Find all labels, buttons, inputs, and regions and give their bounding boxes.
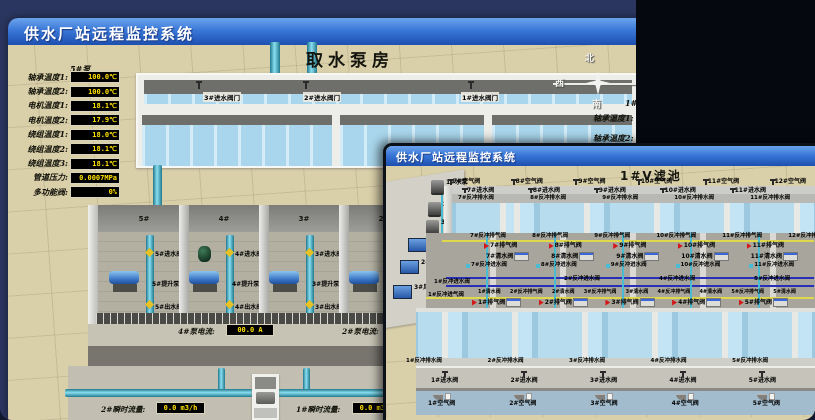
alarm-valve-icon[interactable]: [613, 243, 618, 249]
left-edge-valve-label: 1#反冲进气阀: [428, 293, 464, 299]
valve-label: 2#排气阀: [545, 300, 572, 306]
exhaust-valve[interactable]: 10#排气阀: [678, 243, 715, 249]
inlet-valve[interactable]: 2#进水阀: [510, 371, 537, 384]
bottom-pool-row: [416, 312, 815, 358]
alarm-valve-icon[interactable]: [549, 243, 554, 249]
bottom-inlet-valve-row: 1#进水阀 2#进水阀 3#进水阀 4#进水阀: [431, 368, 776, 386]
flow-meter-1-label: 1#瞬时流量:: [296, 404, 340, 415]
panel-row: 绕组温度3: 18.1℃: [26, 156, 120, 170]
shed-panel: [255, 377, 276, 389]
gate-valve-label: 2#进水阀门: [303, 92, 341, 102]
backwash-air-valve-label: 10#反冲排气阀: [656, 234, 696, 240]
air-valve[interactable]: 7#空气阀: [450, 179, 480, 185]
valve-label: 2#空气阀: [509, 401, 536, 407]
valve-label: 2#进水阀: [510, 378, 537, 384]
water-pump-icon[interactable]: [428, 202, 441, 215]
valve-label: 7#进水阀: [467, 188, 494, 194]
valve-label: 8#空气阀: [516, 179, 543, 185]
valve-label: 5#排气阀: [745, 300, 772, 306]
air-valve[interactable]: 2#空气阀: [509, 393, 536, 407]
valve-label: 1#排气阀: [478, 300, 505, 306]
panel-value: 0%: [70, 186, 120, 198]
air-valve[interactable]: 9#空气阀: [575, 179, 605, 185]
multifunction-valve-tank[interactable]: [198, 246, 211, 262]
air-riser-icon: [769, 393, 775, 400]
gallery-line-label-row: 1#清水阀 2#反冲排气阀 2#清水阀 3#反冲排气阀 3#清水阀 4#反冲排气…: [478, 289, 796, 296]
clean-water-valve[interactable]: 8#清水阀: [551, 252, 594, 261]
pump-base: [113, 284, 137, 292]
panel-label: 电机温度1:: [26, 100, 70, 111]
panel-value: 0.0007MPa: [70, 172, 120, 184]
bottom-drain-valve-row: 1#反冲排水阀 2#反冲排水阀 3#反冲排水阀 4#反冲排水阀 5#反冲排水阀: [406, 358, 768, 365]
drain-valve-label: 10#反冲排水阀: [674, 196, 714, 202]
pump-data-panel: 轴承温度1: 100.0℃ 轴承温度2: 100.0℃ 电机温度1: 18.1℃…: [26, 70, 120, 200]
inlet-valve[interactable]: 8#进水阀: [530, 188, 560, 194]
alarm-valve-icon[interactable]: [472, 300, 477, 306]
inlet-gate-valve-row: 3#进水阀门 2#进水阀门 1#进水阀门: [136, 92, 636, 102]
back-window-titlebar[interactable]: 供水厂站远程监控系统: [8, 18, 653, 45]
panel-label: 管道压力:: [26, 172, 70, 183]
valve-icon[interactable]: [530, 188, 532, 193]
panel-row: 电机温度1: 18.1℃: [26, 99, 120, 113]
exhaust-valve[interactable]: 2#排气阀: [539, 298, 588, 307]
clean-water-valve-icon[interactable]: [640, 298, 655, 307]
blower-icon[interactable]: [400, 260, 419, 274]
valve-label: 10#排气阀: [684, 243, 715, 249]
top-inlet-valve-row: 7#进水阀 8#进水阀 9#进水阀 10#进水阀: [464, 187, 766, 194]
valve-label: 3#空气阀: [590, 401, 617, 407]
backwash-air-valve-label: 8#反冲排气阀: [532, 234, 568, 240]
backwash-air-valve-label: 7#反冲排气阀: [470, 234, 506, 240]
valve-label: 5#进水阀: [749, 378, 776, 384]
panel-row: 管道压力: 0.0007MPa: [26, 171, 120, 185]
gate-valve-icon[interactable]: [198, 81, 200, 89]
lift-pump-label: 5#提升泵: [152, 279, 179, 288]
valve-label: 5#反冲排气阀: [731, 290, 764, 295]
air-valve[interactable]: 10#空气阀: [638, 179, 672, 185]
backwash-water-valve[interactable]: 7#反冲进水阀: [466, 263, 507, 269]
panel-label: 多功能阀:: [26, 187, 70, 198]
valve-icon[interactable]: [638, 179, 640, 185]
drain-valve-label: 1#反冲排水阀: [406, 359, 442, 365]
drain-valve-label: 4#反冲排水阀: [651, 359, 687, 365]
valve-label: 4#空气阀: [672, 401, 699, 407]
panel-label: 轴承温度2:: [26, 86, 70, 97]
panel-value: 18.1℃: [70, 100, 120, 112]
valve-icon[interactable]: [772, 179, 774, 185]
exhaust-valve[interactable]: 8#排气阀: [549, 243, 582, 249]
clean-water-valve[interactable]: 7#清水阀: [486, 252, 529, 261]
alarm-valve-icon[interactable]: [672, 300, 677, 306]
inlet-valve[interactable]: 1#进水阀: [431, 371, 458, 384]
valve-label: 9#排气阀: [619, 243, 646, 249]
valve-label: 4#清水阀: [699, 290, 722, 295]
bottom-air-valve-row: 1#空气阀 2#空气阀 3#空气阀: [428, 390, 780, 410]
backwash-air-valve-label: 9#反冲排气阀: [594, 234, 630, 240]
pump-current-2-label: 2#泵电流:: [342, 326, 379, 337]
clean-water-valve-icon[interactable]: [644, 252, 659, 261]
valve-label: 11#进水阀: [735, 188, 766, 194]
desktop: 供水厂站远程监控系统 取水泵房 5#泵 轴承温度1: 100.0℃ 轴承温度2:…: [0, 0, 815, 420]
valve-icon[interactable]: [444, 371, 446, 377]
inlet-valve[interactable]: 4#进水阀: [669, 371, 696, 384]
valve-label: 11#反冲进水阀: [754, 263, 794, 269]
valve-label: 11#空气阀: [708, 179, 739, 185]
clean-water-valve-icon[interactable]: [706, 298, 721, 307]
panel-value: 18.1℃: [70, 143, 120, 155]
valve-label: 3#进水阀: [590, 378, 617, 384]
valve-label: 1#空气阀: [428, 401, 455, 407]
valve-label: 11#排气阀: [753, 243, 784, 249]
panel-value: 18.0℃: [70, 129, 120, 141]
front-window-titlebar[interactable]: 供水厂站远程监控系统: [386, 146, 815, 166]
valve-label: 9#进水阀: [599, 188, 626, 194]
panel-value: 17.9℃: [70, 114, 120, 126]
drain-valve-label: 3#反冲排水阀: [569, 359, 605, 365]
connector-pipe: [153, 165, 162, 210]
valve-label: 10#进水阀: [665, 188, 696, 194]
air-valve[interactable]: 5#空气阀: [753, 393, 780, 407]
backwash-water-valve[interactable]: 8#反冲进水阀: [536, 263, 577, 269]
channel-water: [142, 125, 332, 166]
backwash-water-valve-row-center: 2#反冲进水阀 4#反冲进水阀 5#反冲进水阀: [564, 276, 790, 283]
valve-label: 5#反冲进水阀: [754, 277, 790, 283]
valve-label: 7#清水阀: [486, 254, 513, 260]
alarm-valve-icon[interactable]: [605, 300, 610, 306]
inlet-valve[interactable]: 3#进水阀: [590, 371, 617, 384]
pump-base: [193, 284, 217, 292]
channel-wall: [142, 115, 332, 125]
air-valve[interactable]: 3#空气阀: [590, 393, 617, 407]
valve-label: 8#反冲进水阀: [541, 263, 577, 269]
lift-pump-icon[interactable]: [349, 271, 379, 284]
clean-water-valve[interactable]: 10#清水阀: [681, 252, 728, 261]
valve-label: 4#反冲排气阀: [658, 290, 691, 295]
blower-icon[interactable]: [393, 285, 412, 299]
panel-label: 电机温度2:: [26, 115, 70, 126]
valve-icon[interactable]: [662, 188, 664, 193]
backwash-water-valve[interactable]: 10#反冲进水阀: [676, 263, 721, 269]
panel-value: 18.1℃: [70, 158, 120, 170]
alarm-valve-icon[interactable]: [484, 243, 489, 249]
air-riser-icon: [688, 393, 694, 400]
shed-base: [254, 408, 277, 418]
exhaust-valve-row-bottom: 1#排气阀 2#排气阀 3#排气阀 4#排气阀: [472, 298, 788, 307]
valve-label: 5#空气阀: [753, 401, 780, 407]
exhaust-valve[interactable]: 11#排气阀: [747, 243, 784, 249]
drain-valve-label: 5#反冲排水阀: [732, 359, 768, 365]
inlet-valve[interactable]: 11#进水阀: [732, 188, 766, 194]
valve-label: 11#清水阀: [751, 254, 782, 260]
valve-label: 7#排气阀: [490, 243, 517, 249]
left-edge-valve-label: 1#反冲进水阀: [434, 280, 470, 286]
backwash-air-valve-row-top: 7#反冲排气阀 8#反冲排气阀 9#反冲排气阀 10#反冲排气阀 11#反冲排气…: [470, 233, 815, 240]
valve-icon[interactable]: [536, 264, 540, 268]
valve-label: 12#空气阀: [775, 179, 806, 185]
valve-label: 9#反冲进水阀: [611, 263, 647, 269]
clean-water-valve-icon[interactable]: [773, 298, 788, 307]
clean-water-valve[interactable]: 9#清水阀: [616, 252, 659, 261]
channel-wall: [340, 115, 484, 125]
lift-pump-icon[interactable]: [269, 271, 299, 284]
clean-water-valve-icon[interactable]: [579, 252, 594, 261]
panel-row: 多功能阀: 0%: [26, 185, 120, 199]
valve-label: 3#反冲排气阀: [584, 290, 617, 295]
front-window-title: 供水厂站远程监控系统: [396, 149, 516, 165]
valve-icon[interactable]: [606, 264, 610, 268]
air-valve[interactable]: 12#空气阀: [772, 179, 806, 185]
valve-label: 2#反冲进水阀: [564, 277, 600, 283]
valve-icon[interactable]: [602, 371, 604, 377]
gate-valve-label: 1#进水阀门: [461, 92, 499, 102]
air-valve[interactable]: 1#空气阀: [428, 393, 455, 407]
valve-label: 2#清水阀: [552, 290, 575, 295]
exhaust-valve[interactable]: 4#排气阀: [672, 298, 721, 307]
panel-label: 绕组温度3:: [26, 158, 70, 169]
flow-meter-icon[interactable]: [256, 392, 275, 404]
valve-icon[interactable]: [513, 179, 515, 185]
panel-value: 100.0℃: [70, 71, 120, 83]
panel-label: 绕组温度2:: [26, 144, 70, 155]
gate-valve-label: 3#进水阀门: [203, 92, 241, 102]
inlet-valve[interactable]: 9#进水阀: [596, 188, 626, 194]
panel-label: 轴承温度1:: [26, 72, 70, 83]
clean-water-valve-icon[interactable]: [514, 252, 529, 261]
air-valve[interactable]: 4#空气阀: [672, 393, 699, 407]
lift-pump-label: 3#提升泵: [312, 279, 339, 288]
meter-shed: [252, 374, 279, 420]
valve-label: 1#清水阀: [478, 290, 501, 295]
valve-label: 8#排气阀: [555, 243, 582, 249]
clean-water-valve-icon[interactable]: [783, 252, 798, 261]
backwash-water-valve[interactable]: 11#反冲进水阀: [749, 263, 794, 269]
pump-base: [353, 284, 377, 292]
valve-icon[interactable]: [523, 371, 525, 377]
pump-base: [273, 284, 297, 292]
panel-row: 轴承温度1: 100.0℃: [26, 70, 120, 84]
dark-backdrop-panel: [636, 0, 815, 152]
valve-label: 3#排气阀: [611, 300, 638, 306]
hall-left-wall: [88, 205, 98, 325]
backwash-water-valve[interactable]: 9#反冲进水阀: [606, 263, 647, 269]
gate-valve-icon[interactable]: [305, 81, 307, 89]
top-pool-row: [452, 203, 815, 233]
clean-water-valve-icon[interactable]: [714, 252, 729, 261]
flow-meter-2-label: 2#瞬时流量:: [101, 404, 145, 415]
drain-valve-label: 8#反冲排水阀: [530, 196, 566, 202]
air-riser-icon: [526, 393, 532, 400]
top-air-valve-row: 7#空气阀 8#空气阀 9#空气阀 10#空气阀: [450, 177, 806, 186]
water-pump-icon[interactable]: [431, 180, 444, 193]
drain-valve-label: 9#反冲排水阀: [602, 196, 638, 202]
back-window-title: 供水厂站远程监控系统: [24, 23, 194, 44]
valve-label: 10#反冲进水阀: [681, 263, 721, 269]
right-panel-label: 轴承温度1:: [593, 113, 634, 124]
lift-pump-icon[interactable]: [109, 271, 139, 284]
valve-icon[interactable]: [464, 188, 466, 193]
filter-pool-window: 供水厂站远程监控系统 1#V滤池 1#水泵 2#水泵: [383, 143, 815, 420]
top-drain-valve-row: 7#反冲排水阀 8#反冲排水阀 9#反冲排水阀 10#反冲排水阀 11#反冲排水…: [458, 195, 790, 202]
alarm-valve-icon[interactable]: [678, 243, 683, 249]
clean-water-valve-icon[interactable]: [573, 298, 588, 307]
valve-label: 4#进水阀: [669, 378, 696, 384]
panel-row: 绕组温度1: 18.0℃: [26, 128, 120, 142]
exhaust-valve[interactable]: 9#排气阀: [613, 243, 646, 249]
valve-icon[interactable]: [676, 264, 680, 268]
valve-icon[interactable]: [761, 371, 763, 377]
lift-pump-label: 4#提升泵: [232, 279, 259, 288]
valve-label: 4#反冲进水阀: [659, 277, 695, 283]
exhaust-valve[interactable]: 1#排气阀: [472, 298, 521, 307]
panel-row: 轴承温度2: 100.0℃: [26, 84, 120, 98]
alarm-valve-icon[interactable]: [747, 243, 752, 249]
lift-pump-icon[interactable]: [189, 271, 219, 284]
water-pump-icon[interactable]: [426, 220, 439, 233]
pump-current-label: 4#泵电流:: [178, 326, 215, 337]
valve-label: 7#反冲进水阀: [471, 263, 507, 269]
panel-row: 电机温度2: 17.9℃: [26, 113, 120, 127]
valve-label: 10#空气阀: [641, 179, 672, 185]
inlet-valve[interactable]: 5#进水阀: [749, 371, 776, 384]
alarm-valve-icon[interactable]: [539, 300, 544, 306]
valve-icon[interactable]: [705, 179, 707, 185]
blower-icon[interactable]: [408, 238, 427, 252]
clean-water-valve-icon[interactable]: [506, 298, 521, 307]
air-valve[interactable]: 8#空气阀: [513, 179, 543, 185]
valve-icon[interactable]: [575, 179, 577, 185]
backwash-air-valve-label: 11#反冲排气阀: [722, 234, 762, 240]
valve-icon[interactable]: [732, 188, 734, 193]
compass-south: 南: [592, 97, 601, 110]
valve-label: 4#排气阀: [678, 300, 705, 306]
panel-row: 绕组温度2: 18.1℃: [26, 142, 120, 156]
pump-current-value: 00.0 A: [226, 324, 274, 336]
valve-label: 3#清水阀: [626, 290, 649, 295]
drain-valve-label: 2#反冲排水阀: [488, 359, 524, 365]
clean-water-valve[interactable]: 11#清水阀: [751, 252, 798, 261]
air-riser-icon: [607, 393, 613, 400]
backwash-air-valve-label: 12#反冲排气阀: [788, 234, 815, 240]
valve-icon[interactable]: [450, 179, 452, 185]
drain-valve-label: 11#反冲排水阀: [750, 196, 790, 202]
valve-icon[interactable]: [596, 188, 598, 193]
flow-meter-2-value: 0.0 m3/h: [156, 402, 205, 414]
valve-icon[interactable]: [749, 264, 753, 268]
panel-label: 绕组温度1:: [26, 129, 70, 140]
clean-water-valve-row-top: 7#清水阀 8#清水阀 9#清水阀 10#清水阀: [486, 252, 798, 261]
valve-label: 1#进水阀: [431, 378, 458, 384]
compass-north: 北: [585, 51, 594, 64]
backwash-water-valve-row-top: 7#反冲进水阀 8#反冲进水阀 9#反冲进水阀 10#反冲进水阀: [466, 262, 794, 269]
scene-title: 取水泵房: [306, 46, 394, 71]
panel-value: 100.0℃: [70, 86, 120, 98]
inlet-valve[interactable]: 10#进水阀: [662, 188, 696, 194]
valve-label: 5#清水阀: [773, 290, 796, 295]
inlet-valve[interactable]: 7#进水阀: [464, 188, 494, 194]
air-riser-icon: [445, 393, 451, 400]
exhaust-valve-row-top: 7#排气阀 8#排气阀 9#排气阀 10#排气阀: [484, 242, 784, 250]
compass-west: 西: [555, 76, 564, 89]
air-valve[interactable]: 11#空气阀: [705, 179, 739, 185]
valve-icon[interactable]: [466, 264, 470, 268]
valve-label: 8#进水阀: [533, 188, 560, 194]
valve-label: 8#清水阀: [551, 254, 578, 260]
valve-label: 10#清水阀: [681, 254, 712, 260]
valve-label: 9#空气阀: [578, 179, 605, 185]
valve-label: 9#清水阀: [616, 254, 643, 260]
exhaust-valve[interactable]: 7#排气阀: [484, 243, 517, 249]
exhaust-valve[interactable]: 3#排气阀: [605, 298, 654, 307]
drain-valve-label: 7#反冲排水阀: [458, 196, 494, 202]
alarm-valve-icon[interactable]: [739, 300, 744, 306]
gate-valve-icon[interactable]: [470, 81, 472, 89]
exhaust-valve[interactable]: 5#排气阀: [739, 298, 788, 307]
valve-icon[interactable]: [682, 371, 684, 377]
valve-label: 7#空气阀: [453, 179, 480, 185]
valve-label: 2#反冲排气阀: [510, 290, 543, 295]
